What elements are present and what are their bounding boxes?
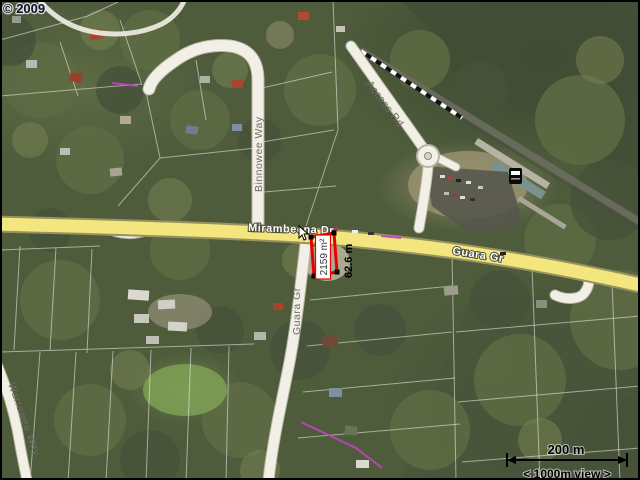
- train-station-icon: [509, 168, 522, 184]
- area-measurement-label: 2159 m²: [316, 235, 331, 279]
- svg-text:2159 m²: 2159 m²: [319, 238, 330, 275]
- aerial-map-canvas[interactable]: Mirambeena Dr Guara Gr Binnowee Way Guar…: [0, 0, 640, 480]
- scale-distance-label: 200 m: [548, 442, 585, 457]
- roundabout: [417, 145, 439, 167]
- map-viewport[interactable]: Mirambeena Dr Guara Gr Binnowee Way Guar…: [0, 0, 640, 480]
- label-binnowee-way: Binnowee Way: [253, 116, 265, 192]
- copyright-label: © 2009: [3, 1, 45, 16]
- side-length-label: 62.6 m: [343, 244, 355, 278]
- label-guara-gr-south: Guara Gr: [291, 287, 303, 335]
